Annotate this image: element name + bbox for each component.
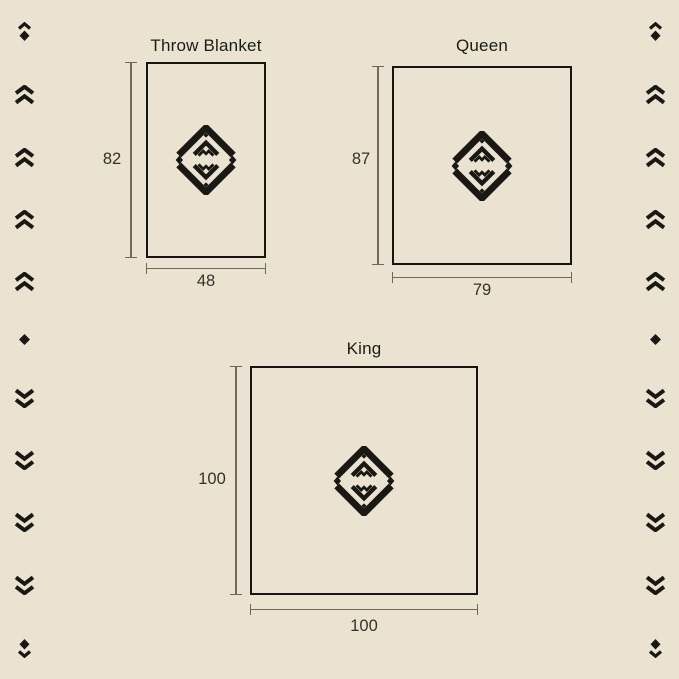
double-chevron-down-icon: [14, 388, 35, 408]
blanket-outline: [392, 66, 572, 265]
width-value: 79: [392, 281, 572, 300]
width-dimension-line: [392, 272, 572, 283]
width-dimension-line: [250, 604, 478, 615]
diamond-icon: [650, 334, 661, 345]
diamond-chevron-down-icon: [648, 637, 663, 658]
height-dimension-line: [230, 366, 242, 595]
double-chevron-up-icon: [645, 272, 666, 292]
brand-motif-icon: [333, 446, 395, 516]
width-value: 48: [146, 272, 266, 291]
brand-motif-icon: [175, 125, 237, 195]
double-chevron-down-icon: [645, 512, 666, 532]
size-title: Throw Blanket: [146, 36, 266, 56]
king-diagram: King 100 100: [0, 0, 679, 679]
chevron-diamond-up-icon: [17, 22, 32, 43]
double-chevron-down-icon: [645, 450, 666, 470]
throw-blanket-diagram: Throw Blanket 82 48: [0, 0, 679, 679]
blanket-outline: [250, 366, 478, 595]
size-title: King: [250, 339, 478, 359]
height-dimension-line: [125, 62, 137, 258]
height-value: 82: [96, 150, 128, 169]
double-chevron-up-icon: [14, 148, 35, 168]
double-chevron-down-icon: [14, 575, 35, 595]
double-chevron-down-icon: [645, 575, 666, 595]
width-dimension-line: [146, 263, 266, 274]
height-value: 100: [192, 470, 232, 489]
double-chevron-up-icon: [14, 85, 35, 105]
brand-motif-icon: [451, 131, 513, 201]
size-title: Queen: [392, 36, 572, 56]
double-chevron-up-icon: [645, 210, 666, 230]
width-value: 100: [250, 617, 478, 636]
height-dimension-line: [372, 66, 384, 265]
double-chevron-up-icon: [645, 85, 666, 105]
size-chart: Throw Blanket 82 48 Queen 87 79 King 100…: [0, 0, 679, 679]
double-chevron-down-icon: [14, 512, 35, 532]
double-chevron-up-icon: [14, 272, 35, 292]
diamond-icon: [19, 334, 30, 345]
right-decoration-rail: [643, 22, 667, 658]
diamond-chevron-down-icon: [17, 637, 32, 658]
double-chevron-up-icon: [645, 148, 666, 168]
chevron-diamond-up-icon: [648, 22, 663, 43]
queen-diagram: Queen 87 79: [0, 0, 679, 679]
double-chevron-up-icon: [14, 210, 35, 230]
height-value: 87: [344, 150, 378, 169]
double-chevron-down-icon: [645, 388, 666, 408]
double-chevron-down-icon: [14, 450, 35, 470]
blanket-outline: [146, 62, 266, 258]
left-decoration-rail: [12, 22, 36, 658]
